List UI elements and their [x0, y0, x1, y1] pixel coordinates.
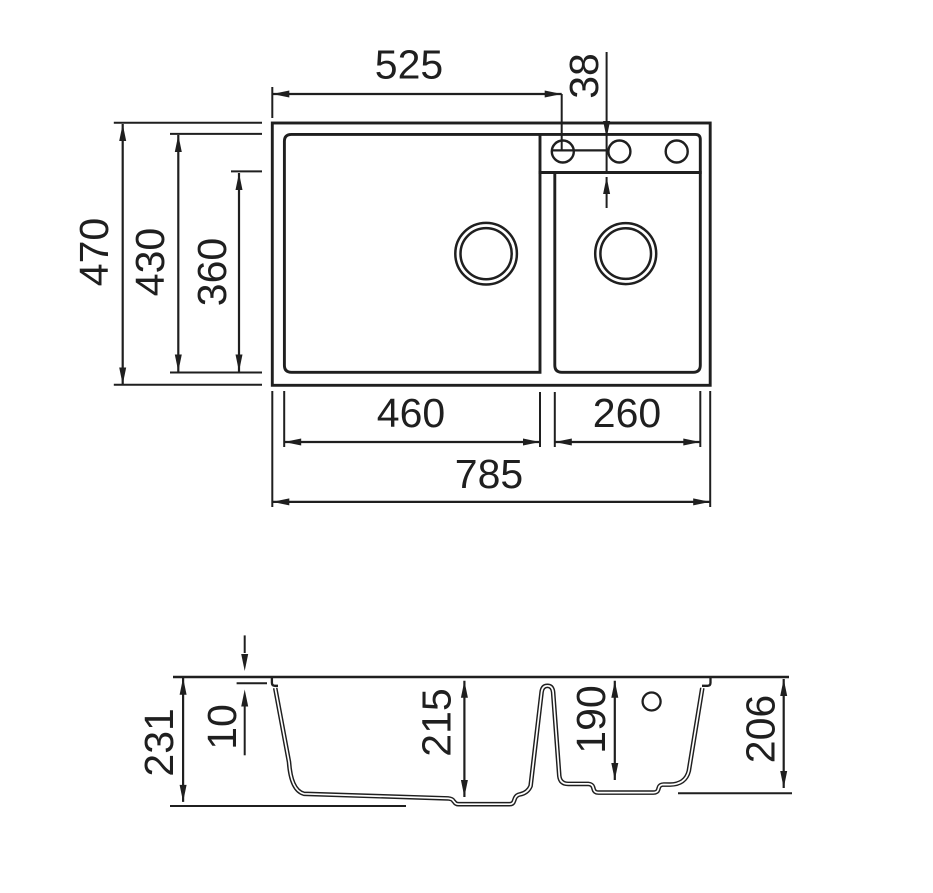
- svg-text:430: 430: [127, 228, 173, 296]
- svg-text:460: 460: [377, 390, 445, 436]
- svg-text:190: 190: [568, 685, 614, 753]
- svg-text:260: 260: [593, 390, 661, 436]
- svg-text:525: 525: [375, 42, 443, 88]
- svg-text:38: 38: [561, 53, 607, 99]
- svg-text:206: 206: [738, 695, 784, 763]
- svg-text:785: 785: [455, 451, 523, 497]
- svg-text:10: 10: [199, 704, 245, 750]
- svg-text:470: 470: [71, 218, 117, 286]
- svg-text:215: 215: [413, 688, 459, 756]
- svg-text:231: 231: [136, 708, 182, 776]
- svg-text:360: 360: [189, 238, 235, 306]
